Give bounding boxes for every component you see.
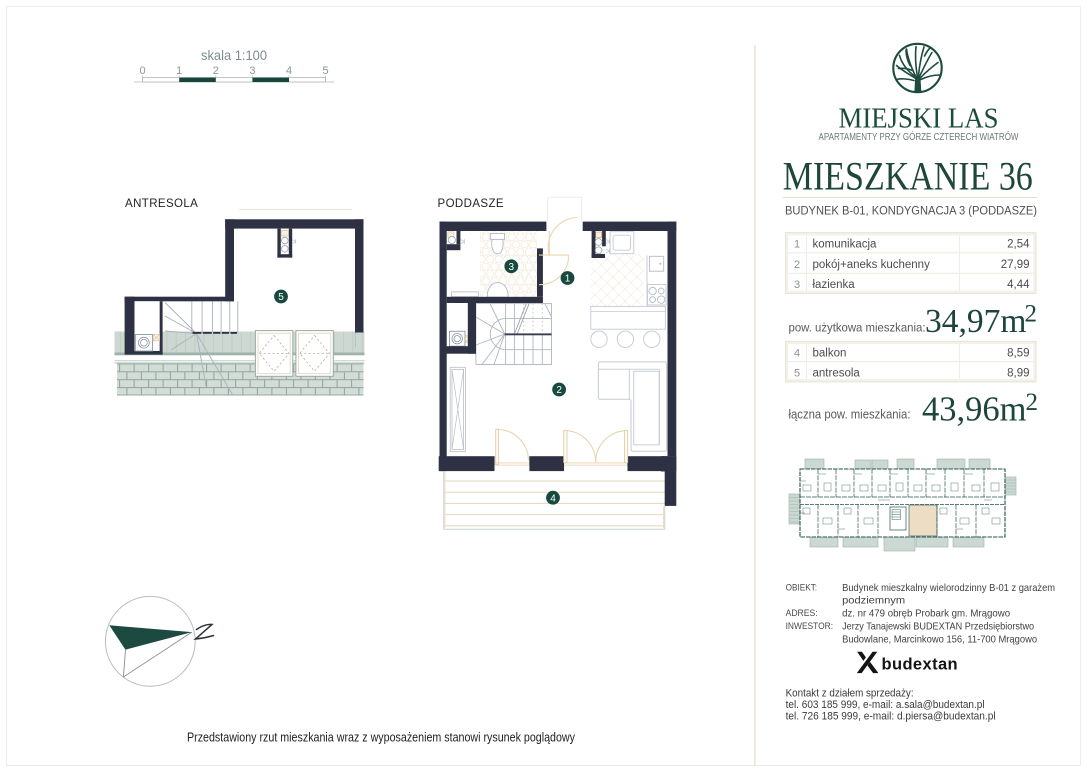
svg-text:8,99: 8,99	[1007, 368, 1029, 380]
svg-text:OBIEKT:: OBIEKT:	[786, 582, 818, 592]
svg-text:4: 4	[550, 493, 556, 504]
svg-text:komunikacja: komunikacja	[813, 239, 878, 251]
svg-text:3: 3	[509, 262, 515, 273]
svg-text:antresola: antresola	[813, 368, 861, 380]
svg-text:Budowlane, Marcinkowo 156, 11-: Budowlane, Marcinkowo 156, 11-700 Mrągow…	[842, 634, 1037, 645]
svg-text:pokój+aneks kuchenny: pokój+aneks kuchenny	[813, 259, 931, 271]
svg-text:łączna pow. mieszkania:: łączna pow. mieszkania:	[789, 407, 911, 421]
svg-text:ANTRESOLA: ANTRESOLA	[125, 198, 198, 210]
svg-text:2: 2	[1026, 389, 1039, 416]
svg-text:skala 1:100: skala 1:100	[201, 47, 267, 63]
svg-text:ADRES:: ADRES:	[786, 608, 818, 618]
svg-text:tel. 726 185 999, e-mail: d.pi: tel. 726 185 999, e-mail: d.piersa@budex…	[786, 711, 996, 723]
svg-text:4: 4	[286, 65, 292, 77]
svg-text:4: 4	[794, 347, 800, 359]
svg-text:APARTAMENTY PRZY GÓRZE CZTEREC: APARTAMENTY PRZY GÓRZE CZTERECH WIATRÓW	[819, 132, 1020, 143]
svg-text:Kontakt z działem sprzedaży:: Kontakt z działem sprzedaży:	[786, 688, 914, 700]
svg-text:1: 1	[794, 239, 800, 251]
svg-text:2: 2	[794, 259, 800, 271]
svg-text:balkon: balkon	[813, 347, 847, 359]
svg-text:INWESTOR:: INWESTOR:	[786, 621, 834, 631]
svg-text:1: 1	[565, 274, 571, 285]
svg-text:43,96m: 43,96m	[922, 391, 1027, 429]
svg-text:5: 5	[323, 65, 329, 77]
svg-text:BUDYNEK B-01, KONDYGNACJA 3 (P: BUDYNEK B-01, KONDYGNACJA 3 (PODDASZE)	[785, 206, 1037, 218]
svg-text:tel. 603 185 999, e-mail: a.sa: tel. 603 185 999, e-mail: a.sala@budexta…	[786, 699, 985, 711]
svg-text:2: 2	[556, 385, 562, 396]
svg-text:34,97m: 34,97m	[925, 303, 1026, 340]
svg-text:Przedstawiony rzut mieszkania: Przedstawiony rzut mieszkania wraz z wyp…	[187, 731, 576, 745]
svg-text:Budynek mieszkalny wielorodzin: Budynek mieszkalny wielorodzinny B-01 z …	[842, 583, 1055, 594]
svg-text:1: 1	[176, 65, 182, 77]
svg-text:2: 2	[1025, 301, 1038, 328]
svg-text:podziemnym: podziemnym	[842, 596, 905, 607]
svg-text:3: 3	[249, 65, 255, 77]
svg-text:3: 3	[794, 279, 800, 291]
svg-text:MIESZKANIE 36: MIESZKANIE 36	[783, 154, 1033, 199]
svg-text:0: 0	[140, 65, 146, 77]
svg-text:dz. nr 479 obręb Probark gm. M: dz. nr 479 obręb Probark gm. Mrągowo	[842, 609, 1010, 620]
svg-text:MIEJSKI LAS: MIEJSKI LAS	[839, 104, 999, 135]
svg-text:łazienka: łazienka	[813, 279, 856, 291]
svg-text:2: 2	[213, 65, 219, 77]
svg-text:8,59: 8,59	[1007, 347, 1029, 359]
svg-text:Jerzy Tanajewski BUDEXTAN Prze: Jerzy Tanajewski BUDEXTAN Przedsiębiorst…	[842, 622, 1034, 633]
svg-text:PODDASZE: PODDASZE	[438, 198, 504, 210]
svg-text:5: 5	[794, 368, 800, 380]
svg-text:2,54: 2,54	[1007, 239, 1030, 251]
svg-text:27,99: 27,99	[1001, 259, 1030, 271]
svg-text:pow. użytkowa mieszkania:: pow. użytkowa mieszkania:	[789, 321, 926, 335]
svg-text:4,44: 4,44	[1007, 279, 1030, 291]
svg-text:budextan: budextan	[882, 655, 959, 673]
svg-text:5: 5	[278, 292, 284, 303]
